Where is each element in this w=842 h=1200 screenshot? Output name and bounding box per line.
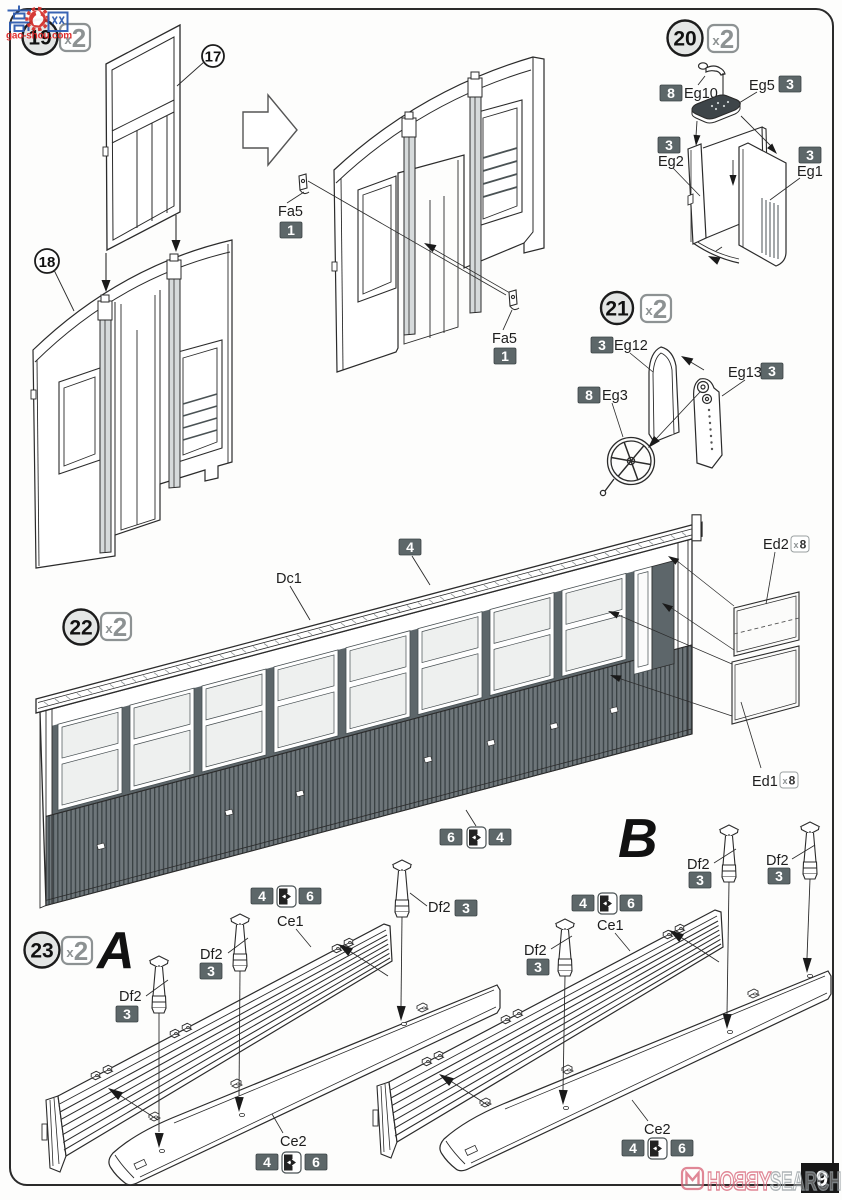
svg-text:4: 4 bbox=[406, 539, 414, 555]
svg-text:3: 3 bbox=[665, 137, 673, 153]
svg-text:8: 8 bbox=[667, 85, 675, 101]
svg-text:3: 3 bbox=[462, 900, 470, 916]
svg-text:17: 17 bbox=[205, 49, 222, 66]
svg-text:2: 2 bbox=[74, 936, 88, 966]
svg-text:6: 6 bbox=[447, 829, 455, 845]
svg-text:3: 3 bbox=[775, 868, 783, 884]
svg-text:2: 2 bbox=[653, 294, 667, 324]
svg-text:4: 4 bbox=[629, 1140, 637, 1156]
svg-text:Eg2: Eg2 bbox=[658, 154, 684, 170]
svg-text:8: 8 bbox=[789, 774, 796, 788]
svg-text:21: 21 bbox=[605, 298, 629, 321]
svg-text:Df2: Df2 bbox=[687, 857, 710, 873]
svg-text:6: 6 bbox=[312, 1154, 320, 1170]
svg-text:A: A bbox=[95, 922, 135, 980]
svg-text:4: 4 bbox=[496, 829, 504, 845]
svg-text:B: B bbox=[745, 1166, 759, 1196]
svg-text:Df2: Df2 bbox=[428, 900, 451, 916]
svg-text:2: 2 bbox=[72, 23, 86, 53]
svg-text:Ce2: Ce2 bbox=[280, 1134, 307, 1150]
svg-text:20: 20 bbox=[673, 28, 696, 51]
svg-text:Df2: Df2 bbox=[524, 943, 547, 959]
svg-text:Df2: Df2 bbox=[200, 947, 223, 963]
svg-text:B: B bbox=[733, 1166, 747, 1196]
svg-text:18: 18 bbox=[39, 254, 56, 271]
svg-text:gao-shou.com: gao-shou.com bbox=[6, 31, 72, 42]
svg-text:Df2: Df2 bbox=[766, 853, 789, 869]
svg-text:4: 4 bbox=[579, 895, 587, 911]
svg-text:3: 3 bbox=[768, 363, 776, 379]
svg-text:x: x bbox=[782, 776, 787, 786]
svg-text:SEARCH: SEARCH bbox=[770, 1166, 841, 1196]
svg-text:Ce1: Ce1 bbox=[277, 914, 304, 930]
svg-text:3: 3 bbox=[534, 959, 542, 975]
svg-text:B: B bbox=[618, 807, 658, 869]
svg-text:3: 3 bbox=[123, 1006, 131, 1022]
svg-text:4: 4 bbox=[258, 888, 266, 904]
svg-text:8: 8 bbox=[585, 387, 593, 403]
svg-text:HO: HO bbox=[707, 1166, 734, 1196]
svg-text:3: 3 bbox=[786, 76, 794, 92]
svg-text:Eg13: Eg13 bbox=[728, 365, 762, 381]
svg-text:8: 8 bbox=[800, 538, 807, 552]
svg-text:22: 22 bbox=[69, 617, 92, 640]
svg-text:2: 2 bbox=[720, 24, 734, 54]
svg-text:x: x bbox=[793, 540, 798, 550]
svg-text:Eg1: Eg1 bbox=[797, 164, 823, 180]
svg-text:3: 3 bbox=[696, 872, 704, 888]
svg-text:Ed1: Ed1 bbox=[752, 774, 778, 790]
svg-text:6: 6 bbox=[678, 1140, 686, 1156]
svg-text:Eg3: Eg3 bbox=[602, 388, 628, 404]
svg-text:3: 3 bbox=[207, 963, 215, 979]
svg-text:4: 4 bbox=[263, 1154, 271, 1170]
svg-text:1: 1 bbox=[501, 348, 509, 364]
svg-text:Df2: Df2 bbox=[119, 989, 142, 1005]
svg-text:3: 3 bbox=[598, 337, 606, 353]
svg-text:6: 6 bbox=[627, 895, 635, 911]
svg-text:Ed2: Ed2 bbox=[763, 537, 789, 553]
svg-text:Ce1: Ce1 bbox=[597, 918, 624, 934]
svg-text:Dc1: Dc1 bbox=[276, 571, 302, 587]
svg-text:Eg5: Eg5 bbox=[749, 78, 775, 94]
svg-text:3: 3 bbox=[806, 147, 814, 163]
svg-text:6: 6 bbox=[306, 888, 314, 904]
svg-text:2: 2 bbox=[113, 612, 127, 642]
svg-text:Fa5: Fa5 bbox=[278, 204, 303, 220]
svg-text:1: 1 bbox=[287, 222, 295, 238]
svg-text:Ce2: Ce2 bbox=[644, 1122, 671, 1138]
svg-text:Eg12: Eg12 bbox=[614, 338, 648, 354]
svg-text:Fa5: Fa5 bbox=[492, 331, 517, 347]
svg-text:23: 23 bbox=[30, 940, 53, 963]
